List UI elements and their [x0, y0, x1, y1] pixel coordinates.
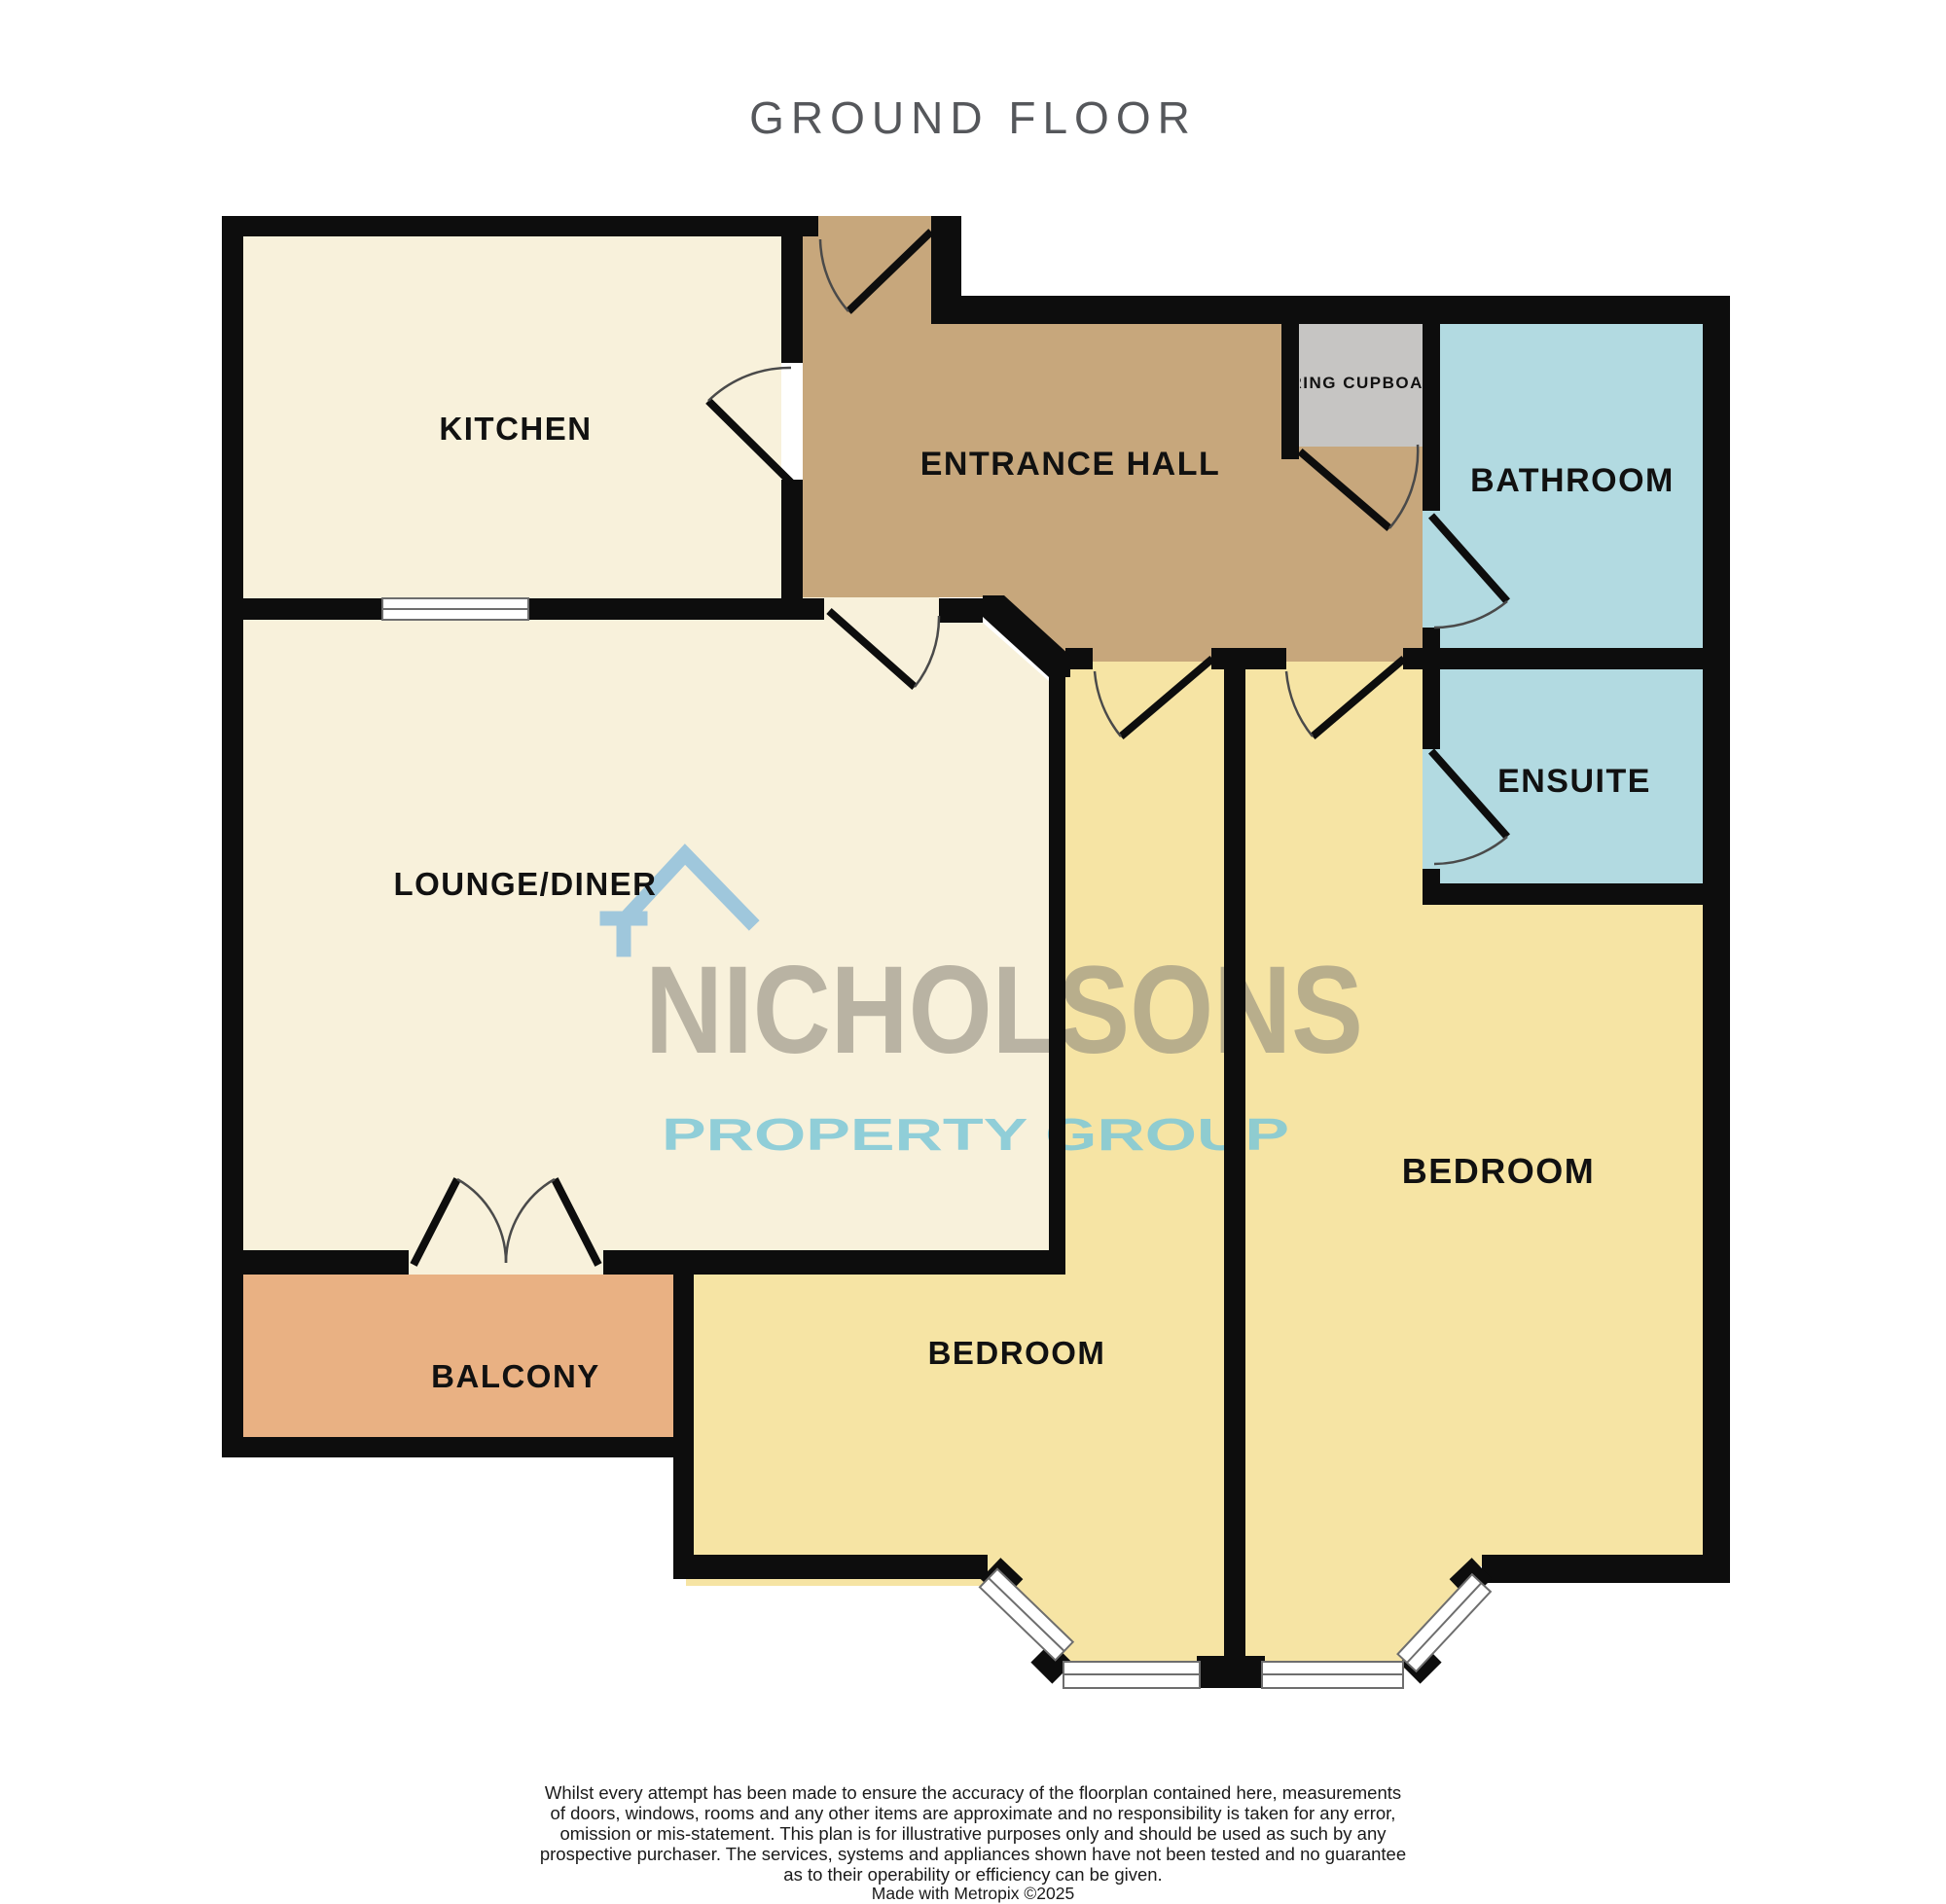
disclaimer-line: prospective purchaser. The services, sys… — [540, 1844, 1406, 1864]
bay-window-left-sill — [1063, 1662, 1200, 1688]
disclaimer-line: of doors, windows, rooms and any other i… — [551, 1803, 1396, 1823]
bedroom-left-label: BEDROOM — [928, 1335, 1106, 1371]
ensuite-label: ENSUITE — [1497, 763, 1651, 800]
disclaimer-line: Whilst every attempt has been made to en… — [545, 1782, 1401, 1803]
disclaimer-line: omission or mis-statement. This plan is … — [559, 1823, 1387, 1844]
metropix-credit: Made with Metropix ©2025 — [872, 1884, 1074, 1903]
footer-disclaimer: Whilst every attempt has been made to en… — [540, 1782, 1406, 1903]
watermark-tagline: PROPERTY GROUP — [662, 1109, 1289, 1160]
balcony-label: BALCONY — [431, 1358, 600, 1394]
floorplan-canvas: GROUND FLOOR NICHOLSONS PROPERTY GROUP — [0, 0, 1946, 1904]
lounge-diner-label: LOUNGE/DINER — [393, 866, 657, 902]
bedroom-right-label: BEDROOM — [1402, 1151, 1596, 1191]
balcony-room — [243, 1275, 673, 1437]
bathroom-label: BATHROOM — [1470, 462, 1675, 499]
kitchen-window — [382, 598, 528, 620]
floorplan-page: GROUND FLOOR NICHOLSONS PROPERTY GROUP — [0, 0, 1946, 1904]
watermark-name: NICHOLSONS — [645, 941, 1363, 1080]
entrance-hall-label: ENTRANCE HALL — [920, 446, 1220, 483]
bay-window-right-sill — [1262, 1662, 1403, 1688]
kitchen-label: KITCHEN — [439, 411, 592, 447]
disclaimer-line: as to their operability or efficiency ca… — [783, 1864, 1162, 1885]
page-title: GROUND FLOOR — [749, 92, 1197, 143]
